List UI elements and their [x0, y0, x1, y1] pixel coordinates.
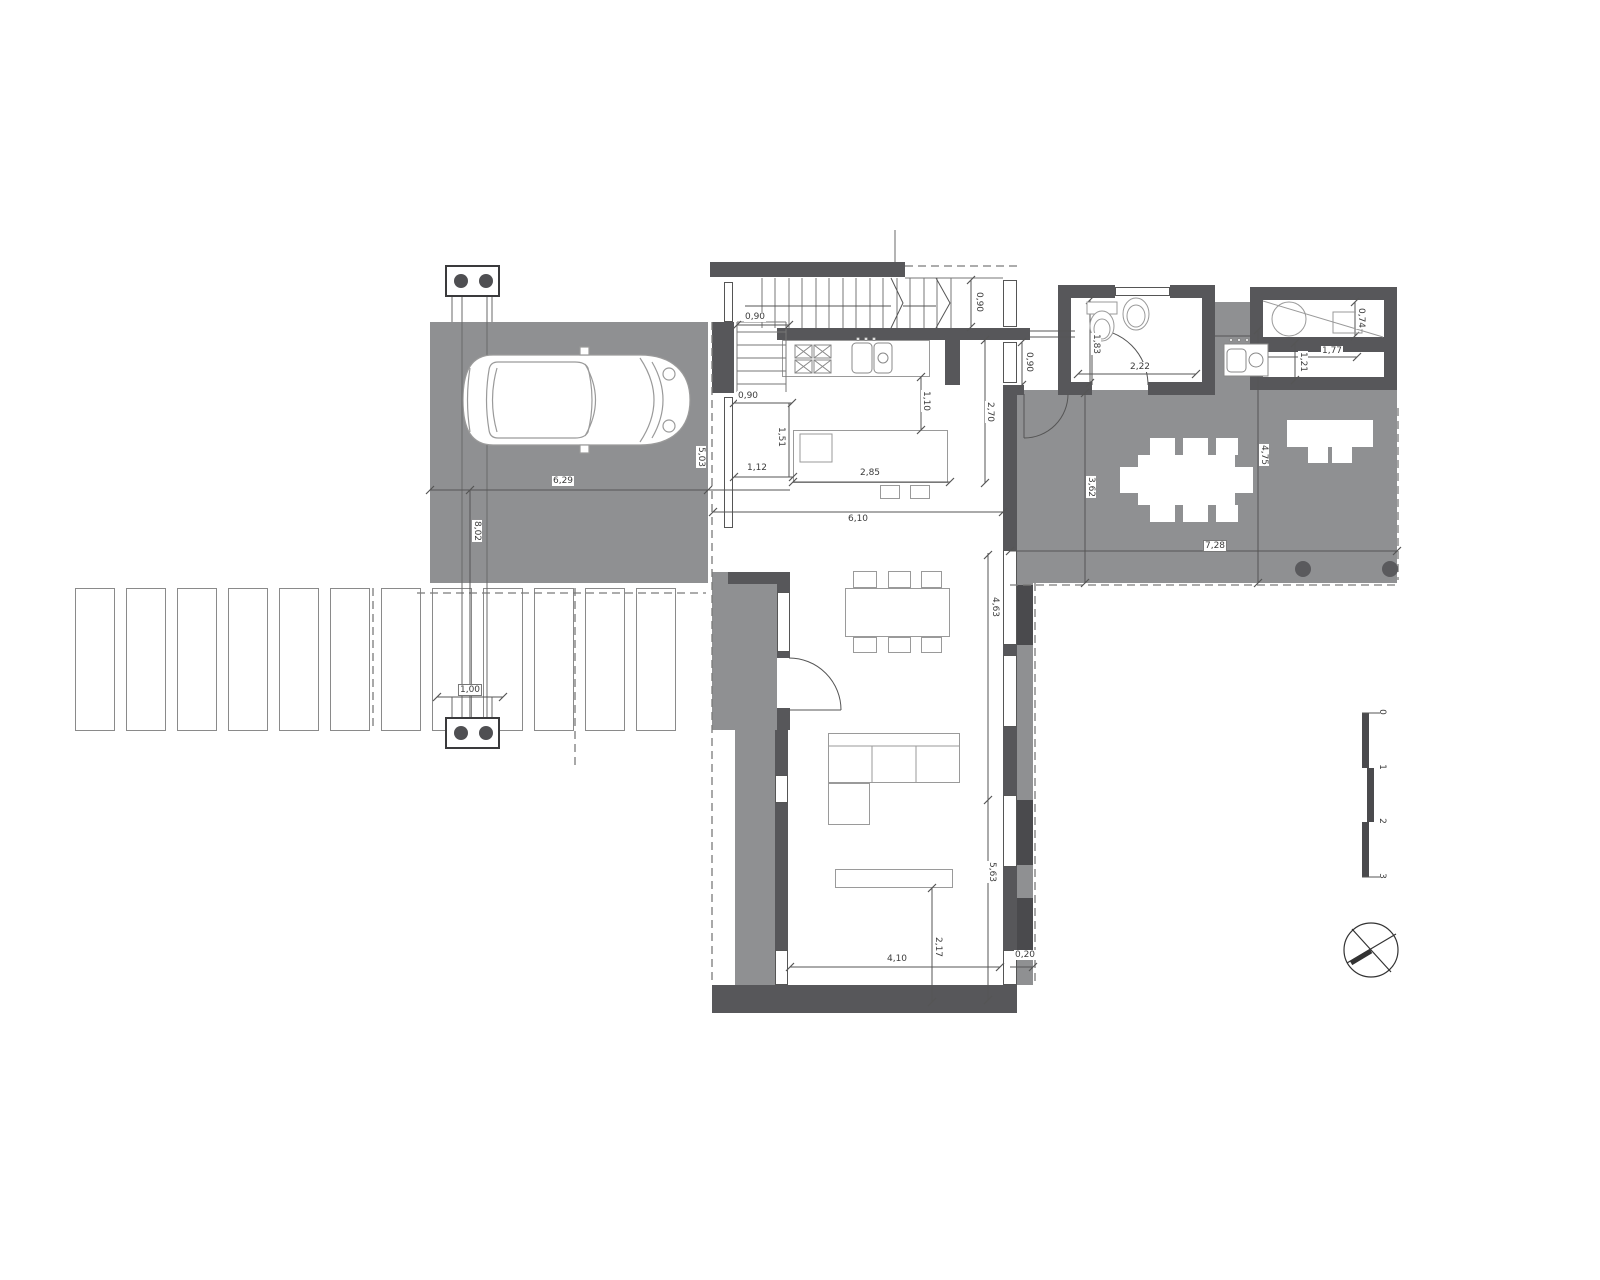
boiler-icon — [1272, 302, 1306, 336]
terrace-sink-strip — [1215, 302, 1250, 390]
outdoor-bar-stool — [1308, 447, 1328, 463]
wall-living-west — [775, 803, 788, 950]
dim-bath-width: 2,22 — [1129, 362, 1151, 372]
chair — [921, 637, 942, 653]
dining-table-indoor — [845, 588, 950, 637]
dim-island-width: 2,85 — [859, 468, 881, 478]
dim-terrace-left: 3,62 — [1086, 476, 1096, 498]
wall-bath-south-b — [1148, 382, 1202, 395]
dim-store-width: 1,77 — [1321, 346, 1343, 356]
dining-table-terrace — [1138, 455, 1235, 505]
chair — [853, 637, 877, 653]
dim-terrace-width: 7,28 — [1203, 540, 1227, 552]
entry-porch-area — [712, 572, 777, 730]
wall-living-east — [1003, 867, 1017, 950]
dim-kitchen-width: 6,10 — [847, 514, 869, 524]
carport-area — [430, 322, 708, 583]
dim-hall-window: 0,90 — [1024, 351, 1034, 373]
wall-living-west — [775, 730, 788, 775]
dim-carport-depth: 5,03 — [696, 446, 706, 468]
bar-stool — [910, 485, 930, 499]
terrace-chair — [1216, 505, 1238, 522]
wall-living-south — [712, 985, 1017, 1013]
dim-bath-depth: 1,83 — [1091, 333, 1101, 355]
window-living-east — [1003, 550, 1017, 645]
paver — [432, 588, 472, 731]
wall-living-west — [777, 708, 790, 730]
shutter-box — [1017, 898, 1033, 950]
outdoor-bar-stool — [1332, 447, 1352, 463]
dim-path-width: 1,00 — [458, 684, 482, 696]
scale-label-3: 3 — [1377, 872, 1387, 880]
dim-carport-width: 6,29 — [552, 476, 574, 486]
wall-living-east — [1003, 410, 1017, 550]
bar-stool — [880, 485, 900, 499]
post-footing-block — [445, 717, 500, 749]
dim-living-width: 4,10 — [886, 954, 908, 964]
dim-island-gap-x: 1,12 — [746, 463, 768, 473]
wall-kitchen-north — [710, 262, 905, 277]
wall-living-east-mullion — [1003, 645, 1017, 655]
wall-living-east — [1003, 390, 1017, 410]
paver — [483, 588, 523, 731]
window — [724, 397, 733, 528]
terrace-chair — [1183, 438, 1208, 455]
chair — [921, 571, 942, 588]
dim-stair-landing: 0,90 — [974, 291, 984, 313]
stair-arrow — [745, 278, 950, 328]
dim-store-depth: 1,21 — [1298, 351, 1308, 373]
shutter-box — [1017, 800, 1033, 865]
dim-terrace-right: 4,75 — [1259, 444, 1269, 466]
paver — [330, 588, 370, 731]
terrace-chair — [1183, 505, 1208, 522]
chair — [888, 571, 911, 588]
dim-island-gap-y: 1,51 — [776, 426, 786, 448]
dim-living-lower: 5,63 — [987, 861, 997, 883]
terrace-chair — [1150, 438, 1175, 455]
dim-kitchen-depth: 2,70 — [985, 401, 995, 423]
scale-label-0: 0 — [1377, 708, 1387, 716]
kitchen-counter — [782, 340, 930, 377]
paver — [279, 588, 319, 731]
wall-store-east — [1384, 287, 1397, 390]
west-side-strip — [735, 730, 775, 987]
dim-kitchen-offset: 0,90 — [737, 391, 759, 401]
dim-tv-wall: 2,17 — [933, 936, 943, 958]
dim-store-shelf: 0,74 — [1356, 307, 1366, 329]
tv-sideboard — [835, 869, 953, 888]
floor-plan: 0,90 0,90 0,90 0,90 1,12 1,51 2,85 1,10 … — [0, 0, 1600, 1280]
wall-living-west — [777, 584, 790, 592]
window-stair-landing — [1003, 280, 1017, 327]
paver — [636, 588, 676, 731]
scale-bar-segment — [1367, 768, 1374, 822]
wall-kitchen-west-pier — [712, 322, 734, 393]
post-footing-block — [445, 265, 500, 297]
wall-living-west — [777, 652, 790, 658]
terrace-chair — [1235, 467, 1253, 493]
wall-under-stairs — [777, 328, 1030, 340]
outdoor-bar-counter — [1287, 420, 1373, 447]
window-living-west — [777, 592, 790, 652]
window-living-west — [775, 775, 788, 803]
wall-counter-pier — [945, 340, 960, 385]
chair — [853, 571, 877, 588]
north-arrow-icon — [1344, 923, 1398, 977]
wall-living-east — [1003, 727, 1017, 795]
bidet-icon — [1123, 298, 1149, 330]
dim-corner-offset: 0,20 — [1014, 950, 1036, 960]
wall-store-south — [1250, 377, 1397, 390]
terrace-chair — [1216, 438, 1238, 455]
living-entry-door-arc — [789, 658, 841, 710]
sofa-chaise — [828, 783, 870, 825]
window-living-east — [1003, 655, 1017, 727]
scale-bar-segment — [1362, 822, 1369, 877]
paver — [75, 588, 115, 731]
paver — [228, 588, 268, 731]
terrace-chair — [1150, 505, 1175, 522]
wall-store-north — [1250, 287, 1397, 300]
wall-bath-south-a — [1071, 382, 1092, 395]
window-living-west — [775, 950, 788, 985]
wall-bath-north-a — [1058, 285, 1115, 298]
paver — [585, 588, 625, 731]
window-living-east — [1003, 795, 1017, 867]
paver — [177, 588, 217, 731]
terrace-chair — [1120, 467, 1138, 493]
scale-label-2: 2 — [1377, 817, 1387, 825]
window-bathroom — [1115, 287, 1170, 296]
scale-bar-segment — [1362, 713, 1369, 768]
window-kitchen-east — [1003, 342, 1017, 383]
paver — [381, 588, 421, 731]
wall-bath-east — [1202, 285, 1215, 395]
chair — [888, 637, 911, 653]
paver — [126, 588, 166, 731]
wall-porch-north — [728, 572, 790, 584]
dim-counter-island: 1,10 — [921, 390, 931, 412]
dim-stair-flight: 0,90 — [744, 312, 766, 322]
window — [724, 282, 733, 322]
scale-label-1: 1 — [1377, 763, 1387, 771]
paver — [534, 588, 574, 731]
sofa — [828, 733, 960, 783]
wall-bath-west — [1058, 298, 1071, 395]
dim-living-upper: 4,63 — [990, 596, 1000, 618]
shutter-box — [1017, 585, 1033, 645]
dim-drive-length: 8,02 — [472, 520, 482, 542]
